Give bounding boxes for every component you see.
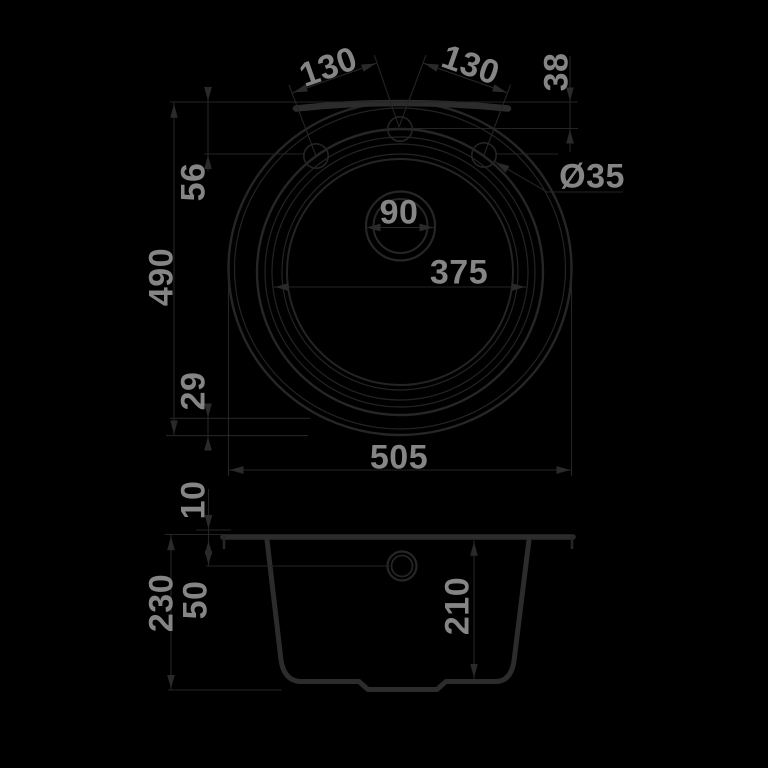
- dim-130-right-label: 130: [437, 38, 505, 93]
- dim-90-label: 90: [380, 193, 419, 231]
- top-view: 130 130 38 56 490 29 Ø35 90 375 505: [142, 38, 625, 477]
- dim-210-label: 210: [438, 577, 476, 635]
- dim-50-label: 50: [176, 581, 214, 620]
- dim-10-label: 10: [174, 481, 212, 520]
- ext-130-right-a: [399, 55, 426, 127]
- ext-130-right-b: [484, 85, 511, 155]
- dim-o35-label: Ø35: [559, 157, 625, 195]
- dim-29-label: 29: [174, 372, 212, 411]
- bowl-circle-2: [265, 137, 535, 407]
- dim-130-left-label: 130: [295, 40, 363, 95]
- dim-38-label: 38: [537, 53, 575, 92]
- technical-drawing-canvas: 130 130 38 56 490 29 Ø35 90 375 505: [0, 0, 768, 768]
- section-bowl-outline: [267, 540, 529, 690]
- section-overflow-inner: [392, 556, 413, 577]
- dim-56-label: 56: [174, 163, 212, 202]
- bowl-circle-3: [272, 144, 528, 400]
- dim-230-label: 230: [142, 574, 180, 632]
- ext-130-left-b: [374, 55, 399, 127]
- dim-490-label: 490: [142, 248, 180, 306]
- dim-375-label: 375: [430, 253, 488, 291]
- bowl-rim-circle: [257, 129, 543, 415]
- section-view: 10 230 50 210: [142, 481, 573, 690]
- sink-inner-contour: [235, 108, 566, 429]
- dim-505-label: 505: [370, 438, 428, 476]
